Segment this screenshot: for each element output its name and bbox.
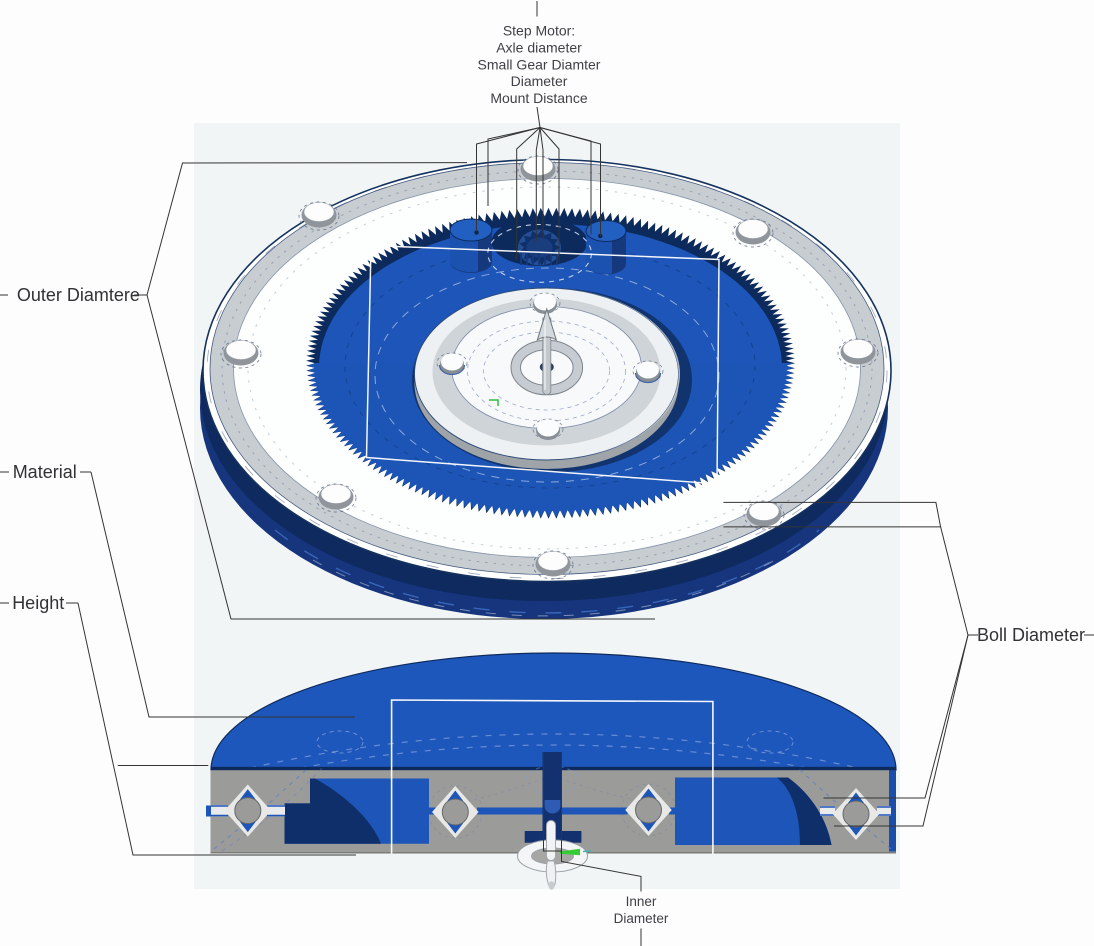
svg-text:Axle diameter: Axle diameter	[496, 39, 582, 55]
svg-text:Small Gear Diamter: Small Gear Diamter	[478, 56, 601, 72]
svg-text:Step Motor:: Step Motor:	[503, 23, 575, 39]
svg-text:Outer Diamtere: Outer Diamtere	[17, 285, 140, 305]
svg-text:Boll Diameter: Boll Diameter	[977, 625, 1085, 645]
svg-text:Inner: Inner	[626, 894, 657, 909]
svg-text:Material: Material	[13, 462, 77, 482]
svg-text:Diameter: Diameter	[614, 911, 669, 926]
svg-text:Mount Distance: Mount Distance	[490, 90, 587, 106]
svg-text:Diameter: Diameter	[511, 73, 568, 89]
svg-text:Height: Height	[12, 593, 64, 613]
